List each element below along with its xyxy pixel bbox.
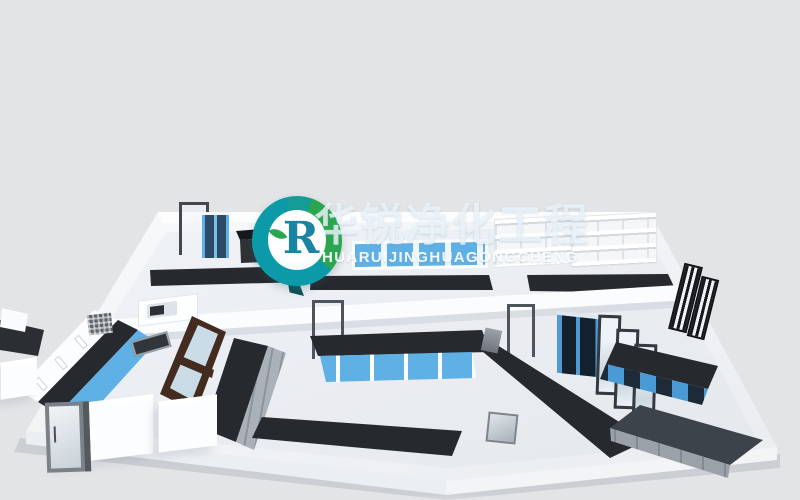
right-lab-blue-safety-cabinet xyxy=(557,311,599,377)
white-equipment-box-2 xyxy=(158,394,217,452)
center-lab-instrument-1 xyxy=(481,327,502,353)
center-room-door-frame-left xyxy=(312,300,344,359)
left-lab-sink-faucet xyxy=(150,305,164,316)
shelf-bracket xyxy=(54,356,68,371)
left-lab-instrument xyxy=(87,313,113,335)
watermark-brand-pinyin: HUARUIJINGHUAGONGCHENG xyxy=(322,249,579,266)
center-room-door-frame-right xyxy=(507,304,535,357)
right-lab-glass-panel-3 xyxy=(632,344,658,425)
front-left-gray-door xyxy=(45,401,91,472)
shelf-bracket xyxy=(74,335,88,350)
lab-3d-render: R 华锐净化工程 HUARUIJINGHUAGONGCHENG xyxy=(0,0,800,500)
watermark-brand-chinese: 华锐净化工程 xyxy=(314,204,590,248)
left-lab-tray xyxy=(131,331,172,357)
white-equipment-box-3 xyxy=(0,357,37,400)
left-lab-sink-cabinet xyxy=(138,293,198,326)
back-left-room-blue-cabinet xyxy=(202,212,229,258)
center-lab-instrument-2 xyxy=(486,412,519,445)
